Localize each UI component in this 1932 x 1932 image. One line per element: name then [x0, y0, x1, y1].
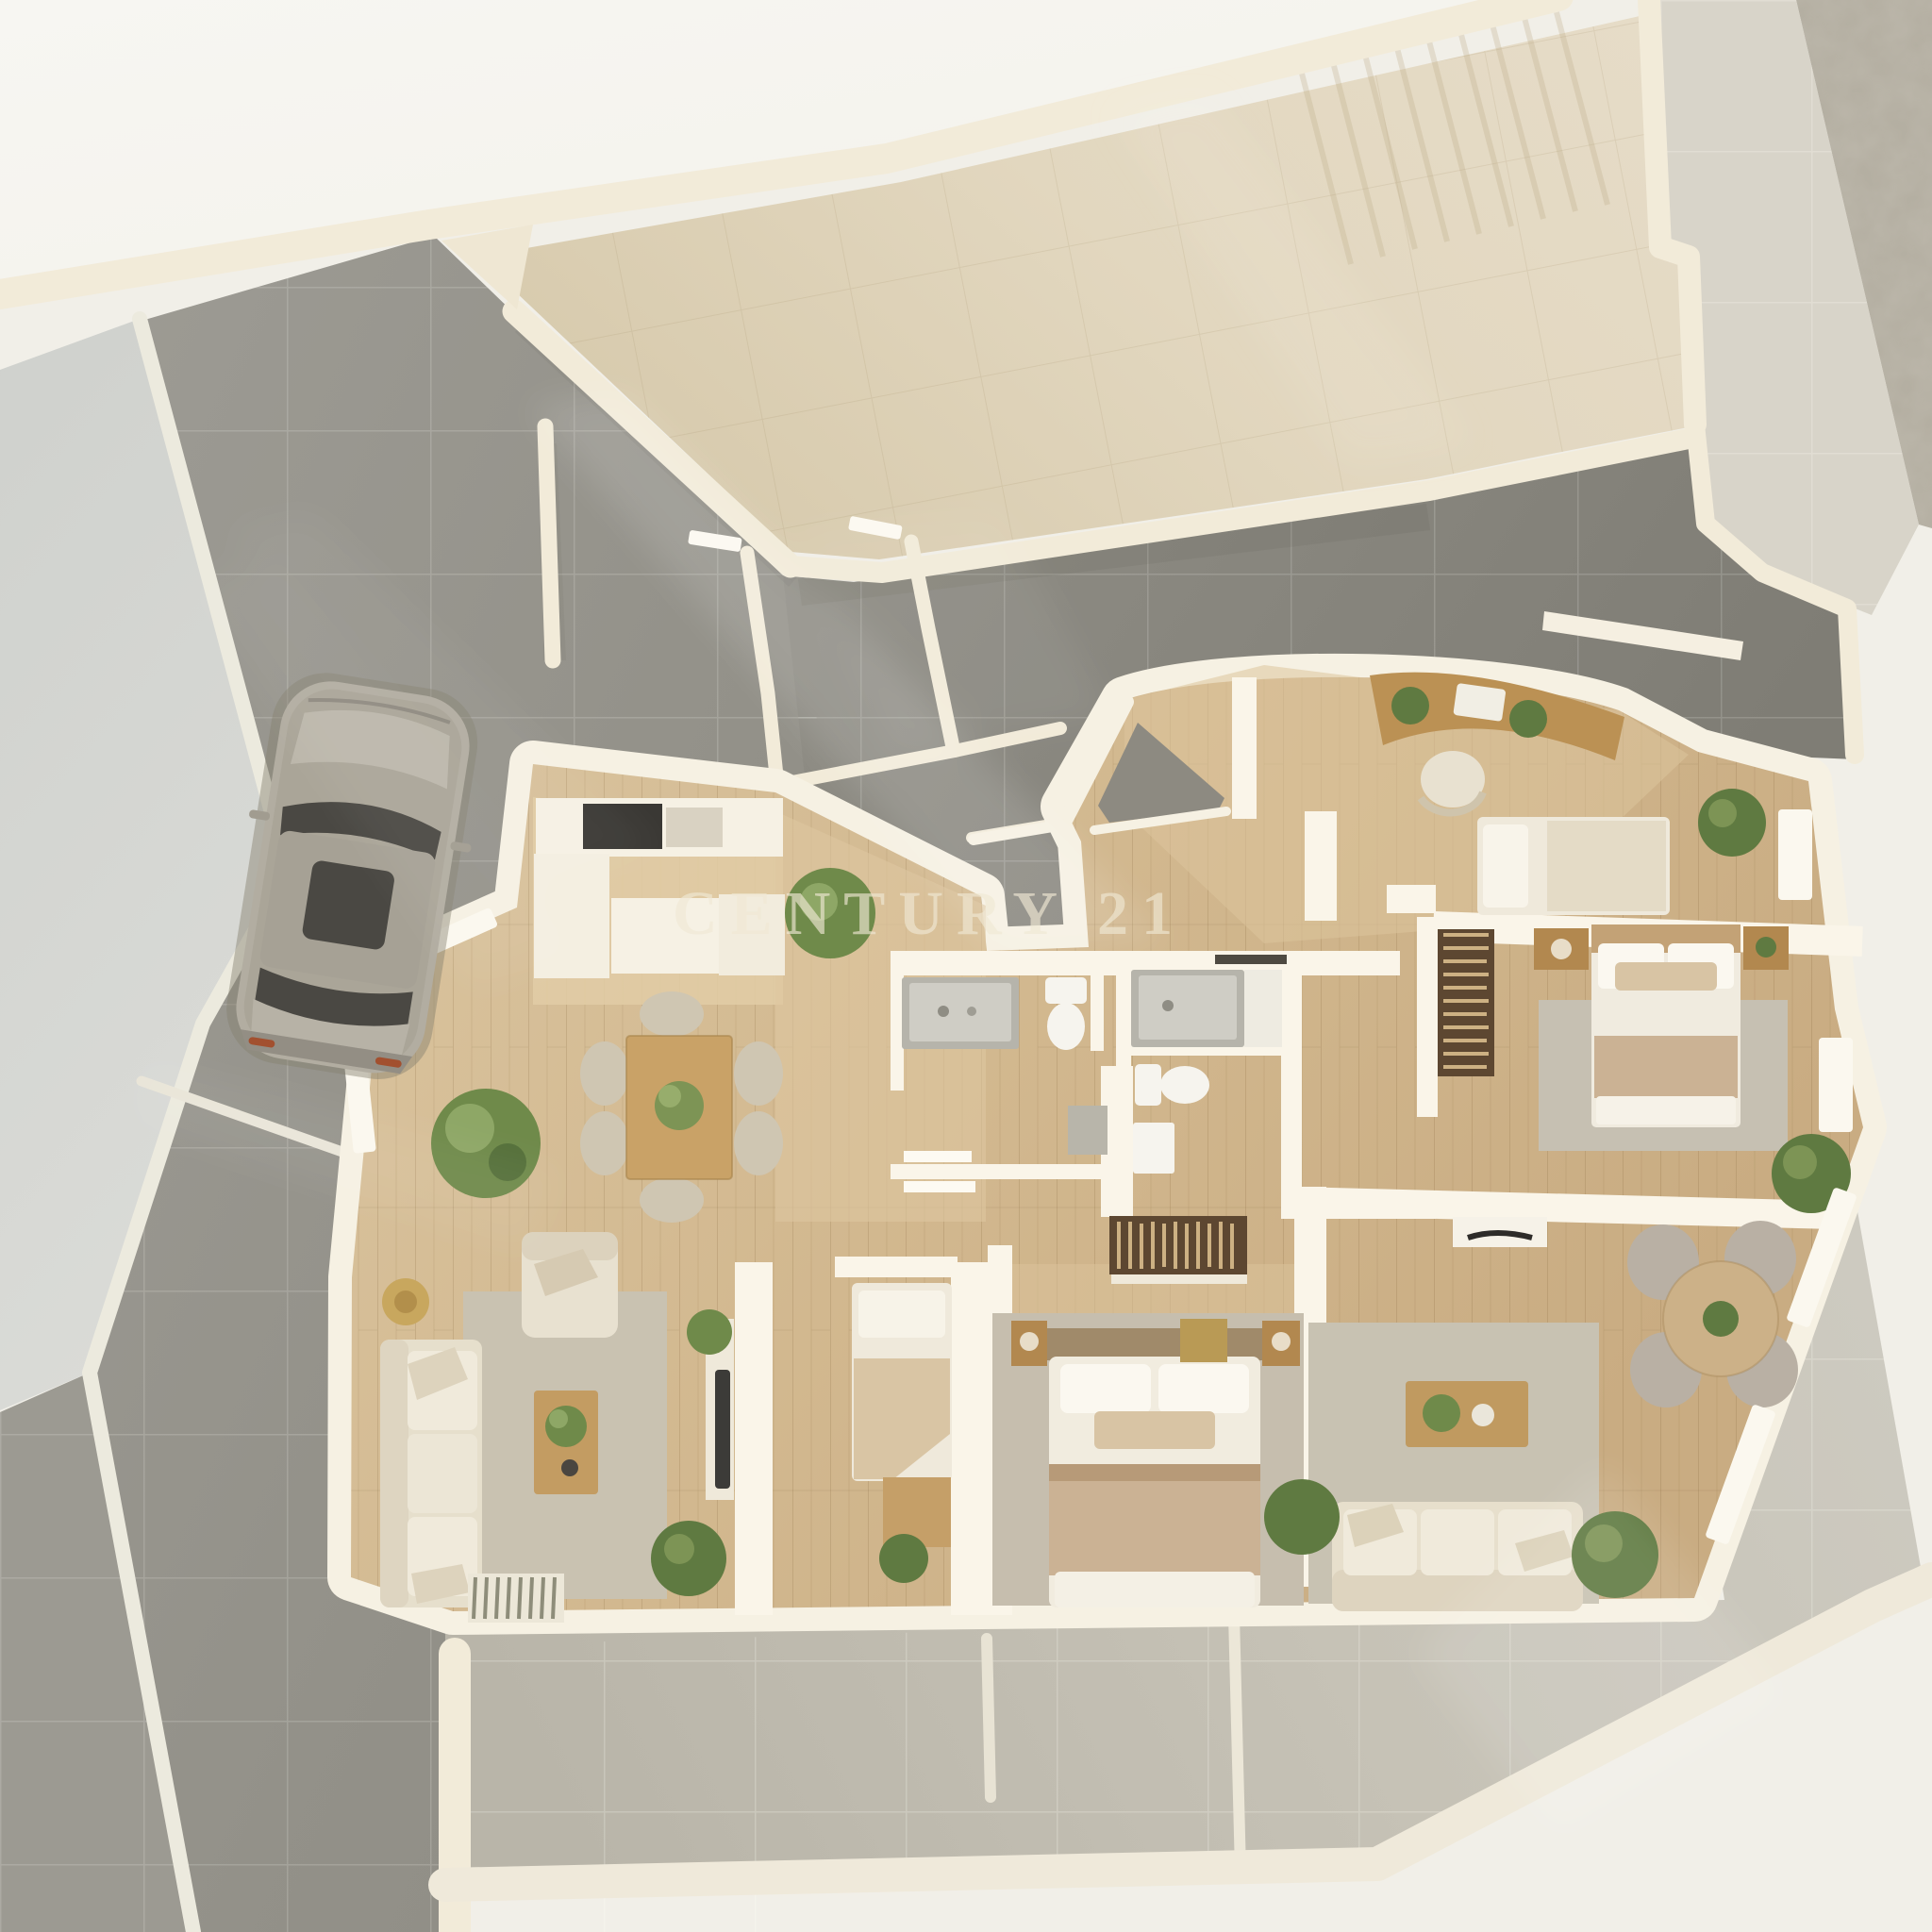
svg-text:CENTURY 21: CENTURY 21 — [673, 879, 1186, 948]
